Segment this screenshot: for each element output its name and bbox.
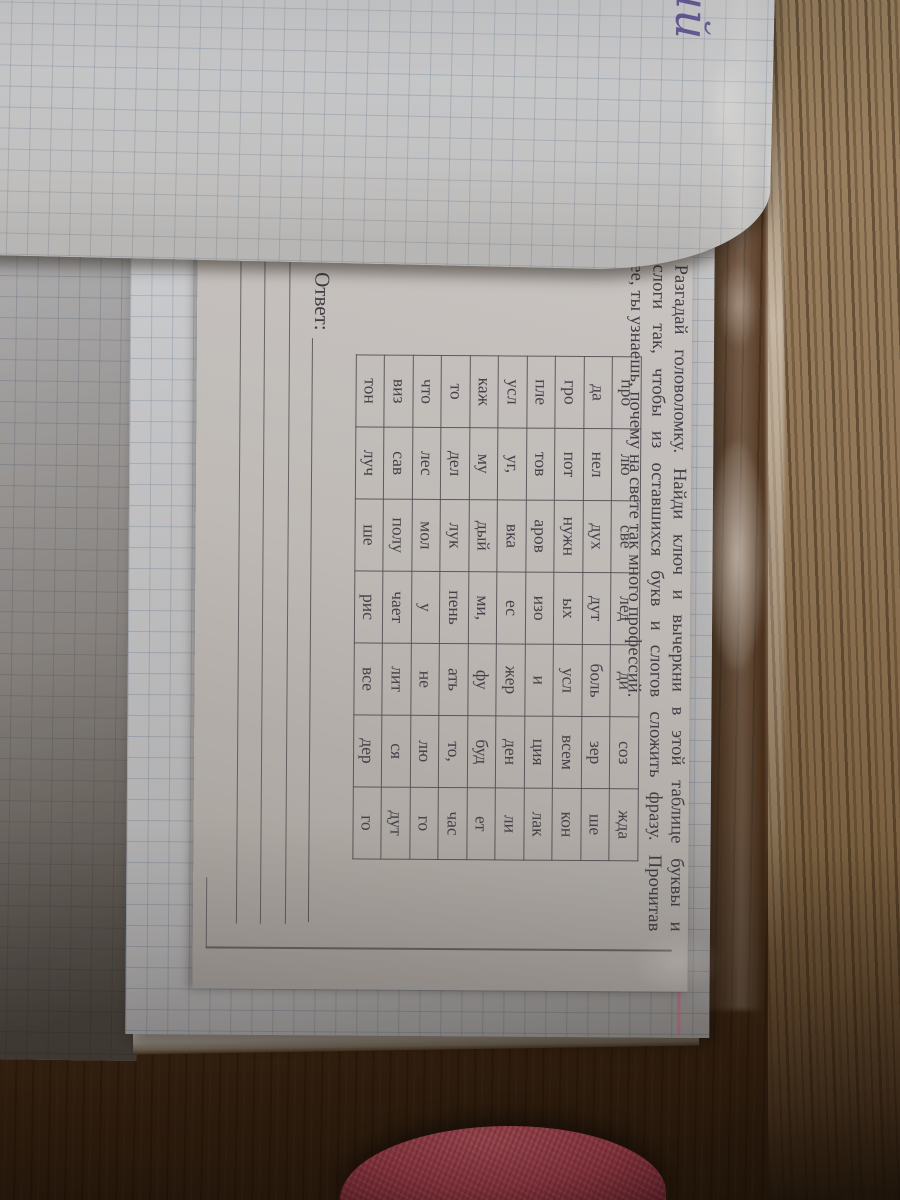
table-cell: ет: [467, 788, 496, 860]
table-cell: луч: [355, 427, 384, 499]
table-cell: ше: [355, 499, 384, 571]
worksheet-frame-line-bottom: [206, 877, 208, 947]
table-cell: и: [525, 644, 554, 716]
table-cell: мол: [412, 499, 441, 571]
table-cell: жер: [496, 644, 525, 716]
notebook-flipped-top-page: ий: [0, 0, 775, 273]
table-cell: ся: [382, 715, 411, 787]
table-cell: то: [441, 355, 470, 427]
table-cell: буд: [467, 716, 496, 788]
table-row: услуг,вкаесжерденли: [495, 356, 527, 860]
table-cell: кон: [552, 788, 581, 860]
table-cell: тов: [526, 428, 555, 500]
table-row: тонлучшерисвседерго: [353, 355, 385, 859]
worksheet-sheet: Разгадай головоломку. Найди ключ и вычер…: [192, 253, 692, 991]
table-row: тоделлукпеньатьто,час: [438, 355, 470, 859]
answer-ruled-line: [260, 262, 266, 924]
table-cell: все: [354, 643, 383, 715]
table-cell: лук: [440, 499, 469, 571]
table-cell: аров: [526, 500, 555, 572]
table-cell: не: [411, 643, 440, 715]
answer-label: Ответ:: [309, 272, 334, 331]
table-cell: нужн: [554, 500, 583, 572]
table-cell: вка: [497, 500, 526, 572]
table-cell: рис: [354, 571, 383, 643]
table-cell: лес: [412, 427, 441, 499]
table-row: гропотнужныхуслвсемкон: [552, 356, 584, 860]
table-cell: всем: [553, 716, 582, 788]
puzzle-table-rows: пролюсвеледдисозждаданелдухдутбользершег…: [353, 355, 642, 861]
photo-of-notebook: Разгадай головоломку. Найди ключ и вычер…: [0, 0, 900, 1200]
table-cell: усл: [553, 644, 582, 716]
table-cell: гро: [555, 356, 584, 428]
table-cell: ше: [581, 788, 610, 860]
table-cell: лед: [611, 573, 640, 645]
table-cell: лак: [524, 788, 553, 860]
answer-ruled-line: [285, 262, 291, 924]
table-cell: пле: [527, 356, 556, 428]
instruction-line: Разгадай головоломку. Найди ключ и вычер…: [665, 265, 692, 932]
table-cell: да: [584, 356, 613, 428]
table-row: плетоваровизоициялак: [524, 356, 556, 860]
table-cell: ать: [439, 643, 468, 715]
table-row: визсавполучаетлитсядут: [381, 355, 413, 859]
table-cell: чает: [383, 571, 412, 643]
table-cell: ция: [524, 716, 553, 788]
table-cell: лит: [382, 643, 411, 715]
table-cell: го: [353, 787, 382, 859]
table-cell: дый: [469, 500, 498, 572]
table-cell: усл: [498, 356, 527, 428]
table-cell: ес: [497, 572, 526, 644]
table-cell: дух: [583, 500, 612, 572]
table-cell: нел: [583, 428, 612, 500]
wood-plank-light-grain: [768, 0, 900, 1200]
table-cell: ли: [495, 788, 524, 860]
worksheet-frame-line-right: [206, 946, 672, 951]
table-cell: то,: [439, 715, 468, 787]
table-cell: что: [413, 355, 442, 427]
table-cell: фу: [468, 644, 497, 716]
instruction-line: слоги так, чтобы из оставшихся букв и сл…: [643, 264, 670, 931]
table-cell: час: [438, 787, 467, 859]
table-row: пролюсвеледдисозжда: [609, 357, 641, 861]
table-cell: дел: [441, 427, 470, 499]
puzzle-table: пролюсвеледдисозждаданелдухдутбользершег…: [352, 354, 642, 861]
handwriting-ink: ий: [652, 0, 716, 65]
table-cell: изо: [525, 572, 554, 644]
table-cell: пень: [440, 571, 469, 643]
table-cell: сав: [384, 427, 413, 499]
table-cell: у: [411, 571, 440, 643]
table-cell: тон: [356, 355, 385, 427]
table-cell: соз: [610, 717, 639, 789]
table-row: данелдухдутбользерше: [581, 356, 613, 860]
table-cell: ых: [554, 572, 583, 644]
table-cell: про: [612, 357, 641, 429]
table-cell: боль: [582, 644, 611, 716]
table-cell: дут: [381, 787, 410, 859]
answer-underline: [308, 339, 314, 923]
table-row: чтолесмолунелюго: [410, 355, 442, 859]
table-cell: виз: [384, 355, 413, 427]
table-cell: ди: [610, 645, 639, 717]
answer-ruled-line: [236, 262, 242, 924]
table-cell: зер: [581, 716, 610, 788]
table-cell: ден: [496, 716, 525, 788]
table-cell: полу: [383, 499, 412, 571]
table-cell: све: [611, 501, 640, 573]
table-cell: лю: [410, 715, 439, 787]
table-cell: му: [469, 428, 498, 500]
table-cell: жда: [609, 789, 638, 861]
table-cell: пот: [555, 428, 584, 500]
table-cell: дут: [582, 572, 611, 644]
table-cell: дер: [353, 715, 382, 787]
table-cell: каж: [470, 356, 499, 428]
answer-row: Ответ:: [305, 272, 335, 922]
table-cell: ми,: [468, 572, 497, 644]
table-cell: уг,: [498, 428, 527, 500]
table-cell: го: [410, 787, 439, 859]
table-cell: лю: [612, 429, 641, 501]
table-row: кажмудыйми,фубудет: [467, 356, 499, 860]
